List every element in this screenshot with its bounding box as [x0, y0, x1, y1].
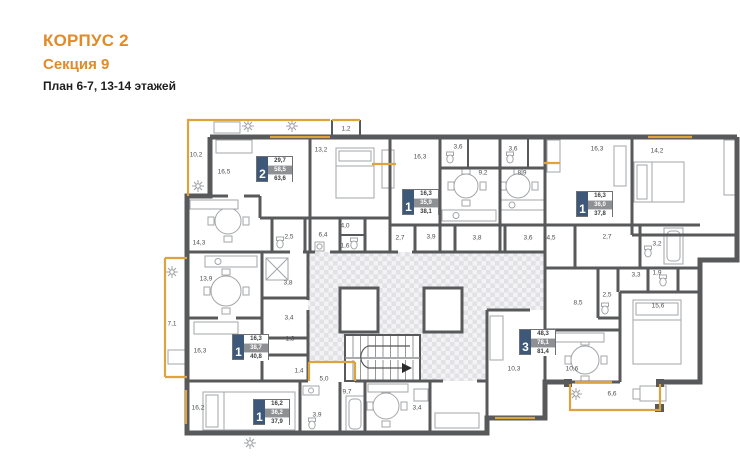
room-area-label: 7,1	[167, 321, 176, 328]
room-area-label: 3,3	[631, 272, 640, 279]
toilet-icon	[447, 152, 454, 163]
shower-icon	[266, 258, 288, 280]
sink-icon	[303, 386, 319, 395]
room-area-label: 16,2	[192, 405, 205, 412]
apartment-card-1room-d[interactable]: 1 16,2 36,2 37,9	[253, 399, 290, 425]
dining-table-icon	[367, 387, 407, 427]
room-area-label: 6,6	[607, 391, 616, 398]
room-area-label: 3,6	[453, 144, 462, 151]
room-area-label: 9,7	[342, 389, 351, 396]
bed-icon	[336, 148, 374, 198]
sofa-icon	[214, 122, 240, 133]
apartment-rooms-count: 1	[233, 335, 244, 359]
living-area-value: 16,3	[244, 335, 268, 343]
living-area-value: 29,7	[268, 157, 292, 165]
living-area-value: 48,3	[531, 330, 555, 338]
sofa-icon	[216, 140, 252, 153]
washer-icon	[315, 242, 324, 251]
room-area-label: 8,5	[573, 300, 582, 307]
kitchen-counter-icon	[442, 210, 496, 221]
kitchen-counter-icon	[368, 384, 408, 392]
room-area-label: 15,6	[652, 303, 665, 310]
room-area-label: 2,5	[284, 234, 293, 241]
room-area-label: 6,4	[318, 232, 327, 239]
bed-icon	[634, 162, 684, 202]
sofa-icon	[194, 322, 238, 334]
elevator-shaft	[424, 288, 462, 332]
room-area-label: 16,3	[194, 348, 207, 355]
room-area-label: 13,9	[200, 276, 213, 283]
area-no-balcony-value: 36,2	[265, 408, 289, 417]
kitchen-counter-icon	[205, 256, 257, 267]
room-area-label: 5,0	[319, 376, 328, 383]
toilet-icon	[660, 275, 667, 286]
plan-title-block: КОРПУС 2 Секция 9 План 6-7, 13-14 этажей	[43, 28, 176, 96]
room-area-label: 1,3	[285, 336, 294, 343]
plant-icon	[244, 437, 256, 449]
total-area-value: 81,4	[531, 347, 555, 356]
wardrobe-icon	[547, 140, 560, 172]
armchair-icon	[414, 389, 428, 401]
room-area-label: 10,2	[190, 152, 203, 159]
kitchen-counter-icon	[500, 200, 544, 210]
total-area-value: 63,6	[268, 174, 292, 183]
sideboard-icon	[548, 333, 604, 342]
room-area-label: 2,5	[602, 292, 611, 299]
room-area-label: 3,2	[652, 241, 661, 248]
room-area-label: 2,7	[602, 234, 611, 241]
room-area-label: 3,8	[283, 280, 292, 287]
closet-icon	[435, 413, 479, 428]
apartment-card-2room[interactable]: 2 29,7 58,5 63,6	[256, 156, 293, 182]
area-no-balcony-value: 78,1	[531, 338, 555, 347]
apartment-rooms-count: 3	[520, 330, 531, 354]
wardrobe-icon	[724, 140, 736, 195]
sofa-icon	[614, 146, 626, 186]
toilet-icon	[507, 152, 514, 163]
plant-icon	[286, 120, 298, 132]
staircase-icon	[345, 335, 420, 381]
room-area-label: 16,3	[591, 146, 604, 153]
room-area-label: 8,9	[517, 170, 526, 177]
room-area-label: 3,6	[523, 235, 532, 242]
total-area-value: 37,9	[265, 417, 289, 426]
area-no-balcony-value: 35,9	[414, 198, 438, 207]
apartment-rooms-count: 2	[257, 157, 268, 181]
room-area-label: 10,3	[508, 366, 521, 373]
room-area-label: 3,4	[284, 315, 293, 322]
floor-plan-page: КОРПУС 2 Секция 9 План 6-7, 13-14 этажей…	[0, 0, 740, 472]
bathtub-icon	[346, 396, 364, 432]
sofa-icon	[382, 150, 394, 188]
total-area-value: 37,8	[588, 209, 612, 218]
elevator-shaft	[340, 288, 378, 332]
building-title: КОРПУС 2	[43, 28, 176, 54]
apartment-rooms-count: 1	[254, 400, 265, 424]
area-no-balcony-value: 38,7	[244, 343, 268, 352]
room-area-label: 3,8	[472, 235, 481, 242]
armchair-icon	[168, 350, 185, 364]
plant-icon	[570, 388, 582, 400]
plant-icon	[242, 120, 254, 132]
apartment-card-1room-b[interactable]: 1 16,3 36,0 37,8	[576, 191, 613, 217]
living-area-value: 16,3	[588, 192, 612, 200]
shelf-icon	[490, 316, 503, 360]
room-area-label: 3,6	[508, 146, 517, 153]
room-area-label: 13,2	[315, 147, 328, 154]
room-area-label: 14,2	[651, 148, 664, 155]
toilet-icon	[645, 246, 652, 257]
room-area-label: 1,2	[341, 126, 350, 133]
room-area-label: 1,6	[340, 243, 349, 250]
room-area-label: 16,3	[414, 154, 427, 161]
toilet-icon	[309, 418, 316, 429]
apartment-card-3room[interactable]: 3 48,3 78,1 81,4	[519, 329, 556, 355]
bed-icon	[633, 300, 681, 364]
floors-subtitle: План 6-7, 13-14 этажей	[43, 77, 176, 96]
room-area-label: 2,7	[395, 235, 404, 242]
toilet-icon	[277, 237, 284, 248]
room-area-label: 1,4	[294, 368, 303, 375]
apartment-rooms-count: 1	[403, 190, 414, 214]
dining-table-icon	[565, 339, 607, 382]
room-area-label: 4,0	[340, 223, 349, 230]
area-no-balcony-value: 36,0	[588, 200, 612, 209]
apartment-rooms-count: 1	[577, 192, 588, 216]
room-area-label: 9,2	[478, 170, 487, 177]
plant-icon	[166, 266, 178, 278]
bathtub-icon	[664, 228, 683, 264]
room-area-label: 1,9	[652, 270, 661, 277]
apartment-card-1room-c[interactable]: 1 16,3 38,7 40,8	[232, 334, 269, 360]
section-title: Секция 9	[43, 54, 176, 77]
kitchen-counter-icon	[190, 200, 238, 209]
toilet-icon	[351, 238, 358, 249]
living-area-value: 16,3	[414, 190, 438, 198]
room-area-label: 10,6	[566, 366, 579, 373]
total-area-value: 38,1	[414, 207, 438, 216]
living-area-value: 16,2	[265, 400, 289, 408]
room-area-label: 4,5	[546, 235, 555, 242]
toilet-icon	[602, 303, 609, 314]
room-area-label: 3,9	[426, 234, 435, 241]
total-area-value: 40,8	[244, 352, 268, 361]
room-area-label: 3,9	[312, 412, 321, 419]
room-area-label: 16,5	[218, 169, 231, 176]
apartment-card-1room-a[interactable]: 1 16,3 35,9 38,1	[402, 189, 439, 215]
room-area-label: 14,3	[193, 240, 206, 247]
room-area-label: 3,4	[412, 405, 421, 412]
area-no-balcony-value: 58,5	[268, 165, 292, 174]
plant-icon	[192, 180, 204, 192]
